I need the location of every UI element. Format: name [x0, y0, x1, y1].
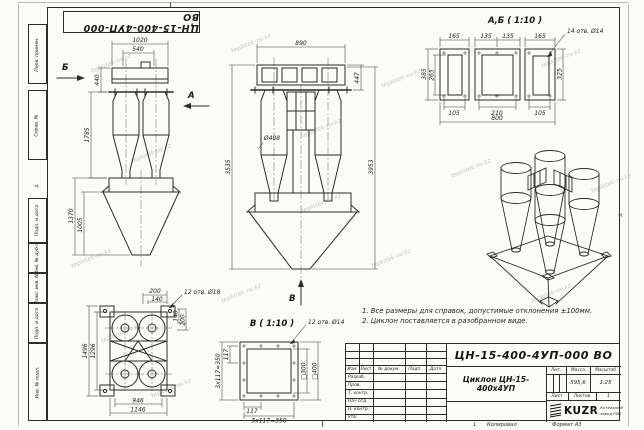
top-designation-text: ЦН-15-400-4УП-000 ВО: [64, 11, 199, 33]
tb-col-izm: Изм.: [346, 365, 359, 373]
dim-label: 135: [502, 33, 514, 40]
dim-label: 440: [94, 74, 101, 86]
dim-label: 1370: [68, 208, 75, 223]
margin-label: Инв. № дубл.: [35, 242, 40, 273]
section-v-title: В ( 1:10 ): [250, 319, 294, 329]
top-designation-stamp: ЦН-15-400-4УП-000 ВО: [63, 11, 200, 33]
tb-sheet-label: Лист: [546, 392, 568, 400]
holes-note: 12 отв. Ø14: [308, 319, 345, 326]
dim-label: 3535: [225, 159, 232, 174]
tb-product-name: Циклон ЦН-15-400х4УП: [446, 366, 546, 401]
dim-label: 325: [557, 68, 564, 80]
section-ab-holes: [442, 51, 552, 98]
margin-box-perv-primen: Перв. примен.: [28, 24, 47, 84]
margin-box-podp-data-1: Подп. и дата: [28, 198, 47, 243]
dim-label: 1020: [132, 37, 147, 44]
dim-label: 1296: [90, 343, 97, 358]
margin-box-sprav-no: Справ. №: [28, 90, 47, 160]
tb-col-list: Лист: [359, 365, 373, 373]
section-v-holes: [242, 344, 296, 398]
holes-note: 14 отв. Ø14: [567, 28, 604, 35]
tb-line: [346, 351, 446, 352]
tb-line: [446, 401, 546, 402]
note-line: 1. Все размеры для справок, допустимые о…: [362, 306, 620, 316]
paper-edge-left: [18, 4, 19, 426]
zone-marker-left: А: [35, 184, 41, 187]
front-view-drawing: 1020 540 440 1785 1370 1005 Б А: [55, 35, 240, 290]
tb-scale-value: 1:25: [590, 374, 621, 392]
view-arrow-a-label: А: [187, 91, 195, 101]
tb-row-razrab: Разраб.: [346, 373, 375, 381]
tb-lit-label: Лит.: [546, 366, 566, 374]
dim-label: 165: [534, 33, 546, 40]
dim-label: 540: [132, 46, 144, 53]
tb-line: [559, 374, 560, 392]
isometric-view-drawing: [478, 128, 620, 318]
tb-col-docnum: № докум.: [373, 365, 405, 373]
tb-row-tkontr: Т. контр.: [346, 389, 375, 398]
margin-box-inv-dubl: Инв. № дубл.: [28, 243, 47, 273]
dim-label: 200: [180, 314, 187, 326]
dim-label: 1496: [82, 343, 89, 358]
dim-label: Ø408: [263, 135, 280, 142]
dim-label: 3953: [368, 159, 375, 174]
tb-line: [405, 344, 406, 422]
tb-row-nachotd: Нач.отд: [346, 398, 375, 406]
holes-note: 12 отв. Ø18: [184, 289, 221, 296]
tb-col-data: Дата: [426, 365, 446, 373]
tb-designation: ЦН-15-400-4УП-000 ВО: [446, 344, 621, 366]
dim-label: 3x117=350: [215, 353, 222, 388]
dim-label: 1146: [130, 407, 145, 414]
logo-text: KUZR: [564, 405, 598, 417]
margin-label: Подп. и дата: [35, 307, 40, 338]
dim-label: 105: [534, 110, 546, 117]
margin-box-podp-data-2: Подп. и дата: [28, 303, 47, 343]
section-v-outline: [240, 342, 298, 400]
dim-label: 165: [448, 33, 460, 40]
company-line: завод РЗП: [600, 411, 623, 416]
dim-label: 265: [429, 69, 436, 81]
section-ab-drawing: А,Б ( 1:10 ) 165 135 135 165 385 265 325…: [420, 10, 640, 130]
tb-row-nkontr: Н. контр.: [346, 406, 375, 414]
title-block: Изм. Лист № докум. Подп. Дата Разраб. Пр…: [345, 343, 620, 421]
dim-label: 447: [354, 72, 361, 84]
dim-label: 140: [151, 296, 163, 303]
plan-outline: [100, 306, 175, 396]
front-centerlines: [126, 59, 156, 267]
view-arrow-b-label: Б: [62, 63, 69, 73]
margin-box-vzam-inv: Взам. инв. №: [28, 273, 47, 303]
tb-mass-label: Масса: [566, 366, 590, 374]
tb-line: [346, 358, 446, 359]
iso-outline: [487, 151, 611, 308]
dim-label: 117: [223, 349, 230, 361]
margin-label: Инв. № подл.: [35, 366, 40, 398]
dim-label: 800: [491, 115, 503, 122]
paper-edge-top: [18, 2, 628, 3]
notes-block: 1. Все размеры для справок, допустимые о…: [362, 306, 620, 326]
section-v-dimensions: 117 3x117=350 □300 □400 117 3x117=350 12…: [215, 319, 345, 425]
tb-line: [426, 344, 427, 422]
dim-label: 1785: [84, 127, 91, 142]
dim-label: 117: [246, 408, 258, 415]
tb-sheets-value: 1: [596, 392, 621, 400]
section-ab-title: А,Б ( 1:10 ): [487, 16, 542, 26]
fold-mark-top: [170, 2, 171, 7]
tb-mass-value: 595,6: [566, 374, 590, 392]
dim-label: 1005: [77, 217, 84, 232]
note-line: 2. Циклон поставляется в разобранном вид…: [362, 316, 620, 326]
dim-label: □300: [301, 362, 308, 379]
company-name: Котельный завод РЗП: [600, 405, 623, 415]
margin-label: Подп. и дата: [35, 205, 40, 236]
blueprint-sheet: { "watermark": "teplotek-nv.kz", "stamp_…: [0, 0, 644, 430]
dim-label: 140: [173, 310, 180, 322]
spring-icon: [549, 403, 562, 418]
company-line: Котельный: [600, 405, 623, 410]
company-logo: KUZR Котельный завод РЗП: [546, 400, 621, 421]
dim-label: 105: [448, 110, 460, 117]
tb-sheets-label: Листов: [568, 392, 596, 400]
dim-label: 135: [480, 33, 492, 40]
tb-row-prov: Пров.: [346, 381, 375, 389]
dim-label: 890: [295, 40, 307, 47]
section-ab-flanges: [440, 49, 555, 100]
tb-row-utv: Утв.: [346, 414, 375, 422]
dim-label: 200: [149, 288, 161, 295]
dim-label: □400: [312, 362, 319, 379]
side-outline: [247, 65, 359, 269]
front-dimensions: 1020 540 440 1785 1370 1005: [68, 37, 168, 255]
margin-label: Перв. примен.: [35, 37, 40, 72]
dim-label: 385: [421, 68, 428, 80]
dim-label: 3x117=350: [251, 418, 286, 425]
section-v-drawing: В ( 1:10 ) 117 3x117=350 □300 □400 117 3…: [200, 300, 360, 425]
margin-box-inv-podl: Инв. № подл.: [28, 343, 47, 421]
tb-col-podp: Подп.: [405, 365, 425, 373]
sheet-number-footer: 1: [473, 422, 476, 428]
tb-scale-label: Масштаб: [590, 366, 621, 374]
margin-label: Справ. №: [35, 114, 40, 136]
dim-label: 946: [132, 398, 144, 405]
margin-label: Взам. инв. №: [35, 272, 40, 303]
format-label: Формат А3: [552, 422, 582, 428]
tb-line: [553, 374, 554, 392]
front-view-arrows: Б А: [57, 63, 209, 109]
side-view-drawing: 890 447 Ø408 3535 3953 В: [225, 35, 385, 310]
copied-label: Копировал: [487, 422, 517, 428]
